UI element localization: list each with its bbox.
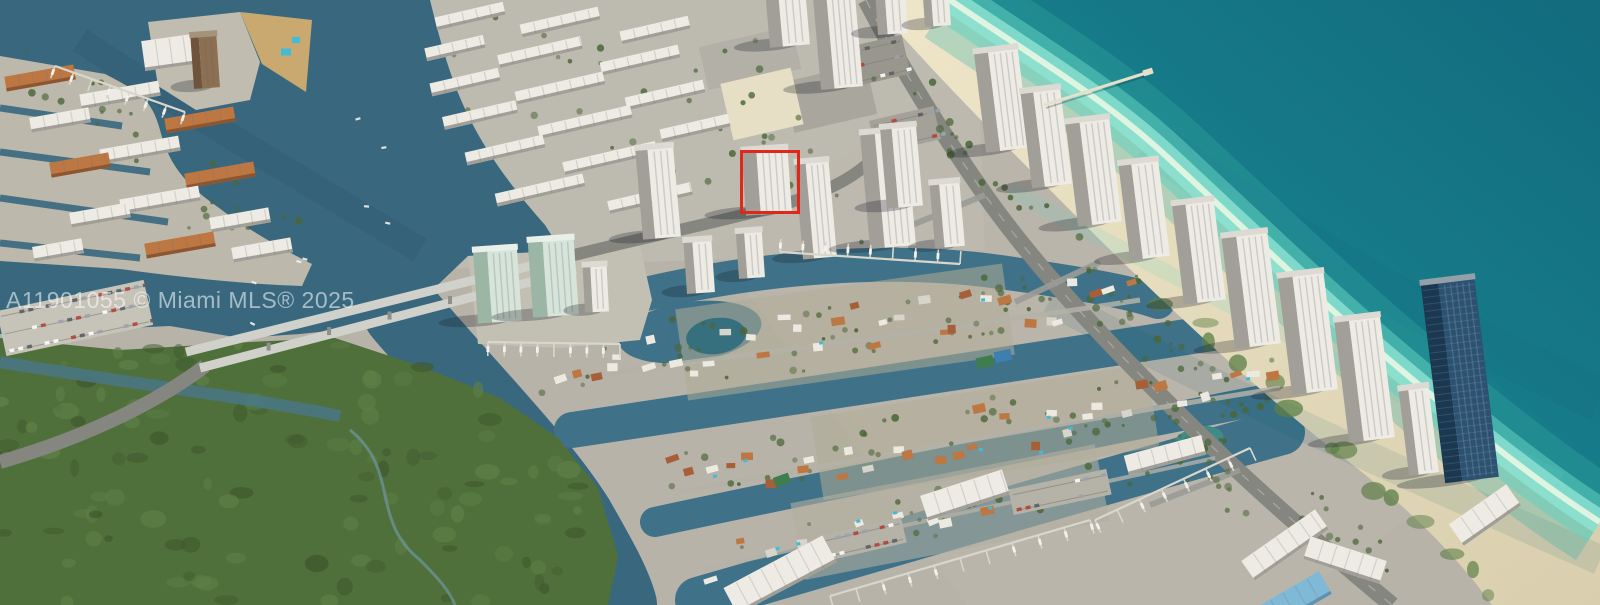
aerial-scene [0, 0, 1600, 605]
aerial-photo: A11901055 © Miami MLS® 2025 [0, 0, 1600, 605]
